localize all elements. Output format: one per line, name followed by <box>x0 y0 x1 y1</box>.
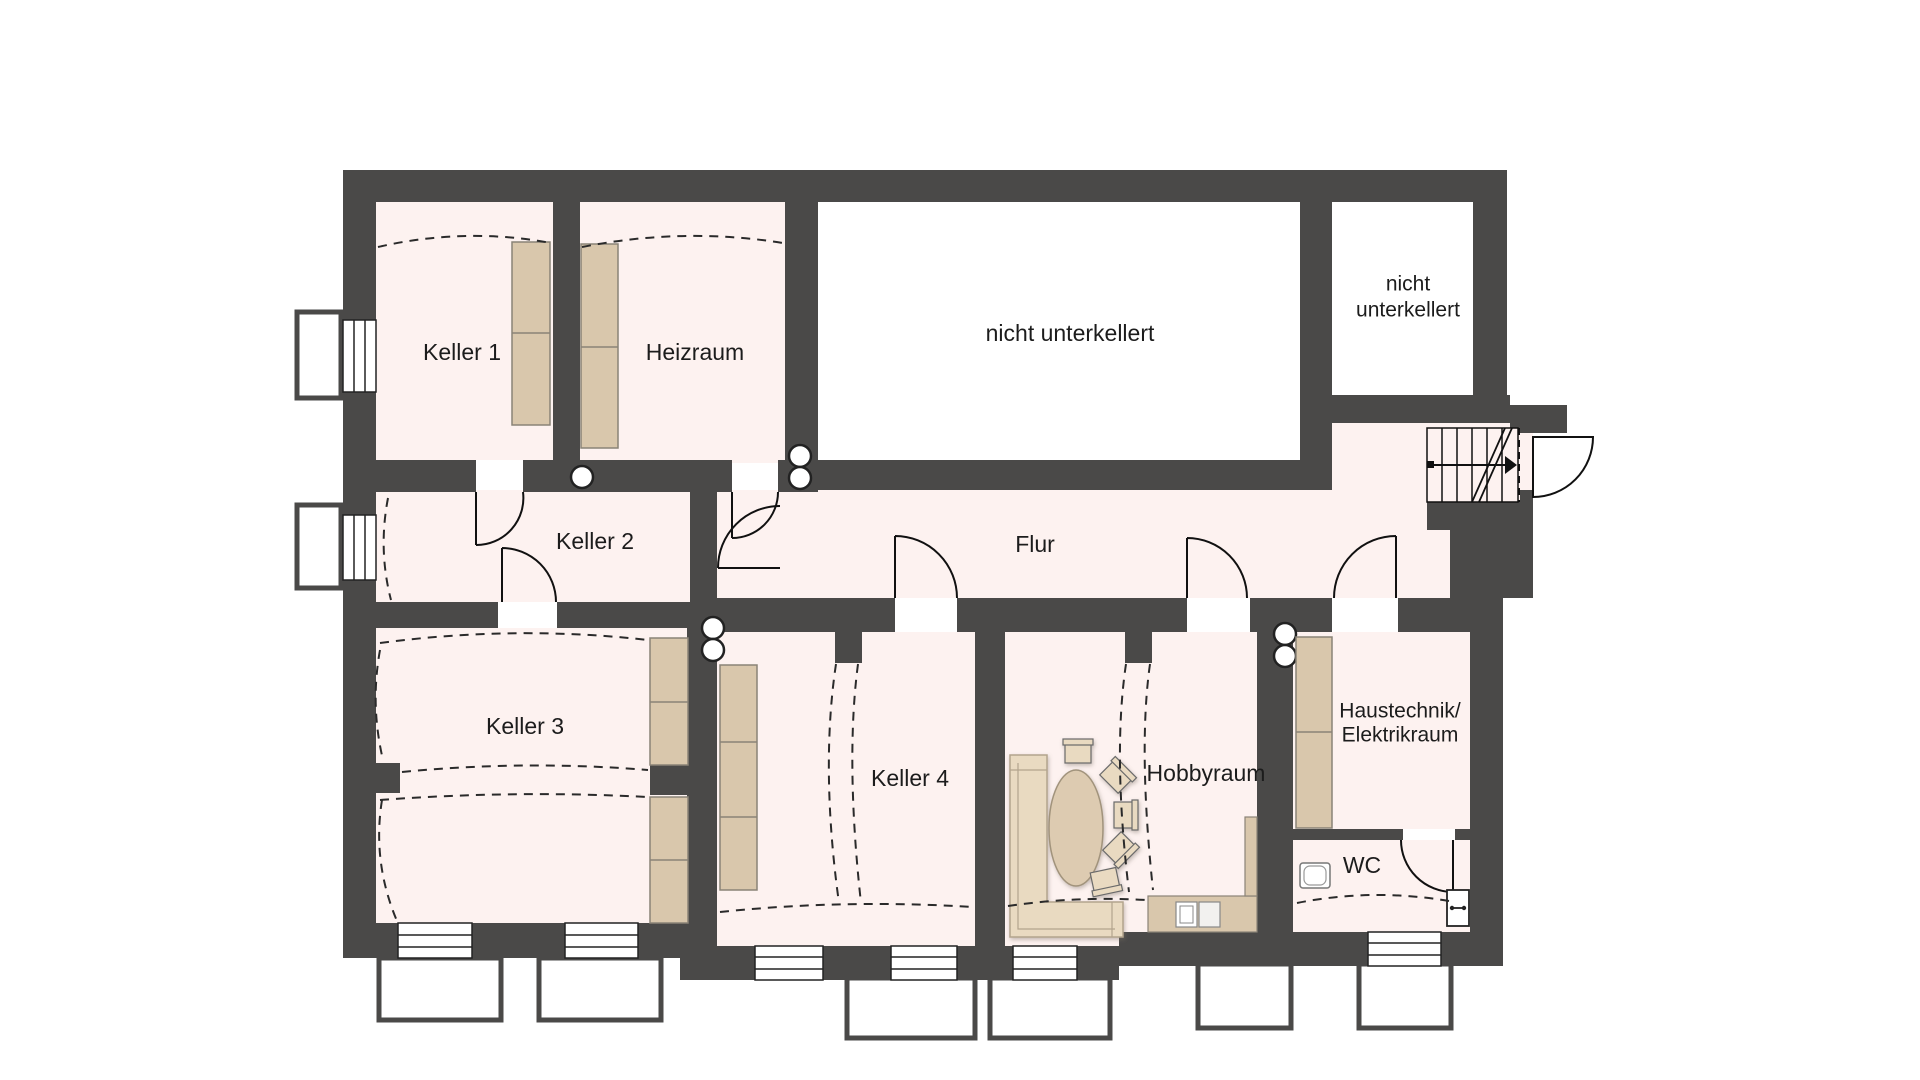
wall-wc-jamb <box>1455 829 1470 840</box>
wall-flur-bottom-a <box>717 598 895 632</box>
wall-keller1-keller2-b <box>523 460 732 492</box>
label-not-basemented-small-line1: nicht <box>1386 273 1431 296</box>
wall-keller4-hobbyraum <box>975 632 1005 946</box>
room-keller2 <box>376 490 690 602</box>
label-haustechnik-line1: Haustechnik/ <box>1339 700 1461 723</box>
window-keller1 <box>343 320 376 392</box>
light-well-bottom-1 <box>379 958 501 1020</box>
shelf-keller3-upper <box>650 638 688 765</box>
room-keller3 <box>376 628 687 923</box>
shelf-keller4 <box>720 665 757 890</box>
pipe-circle-icon <box>1274 645 1296 667</box>
chair <box>1063 739 1093 763</box>
pipe-circle-icon <box>1274 623 1296 645</box>
wall-keller2-right <box>690 490 717 632</box>
pipe-circle-icon <box>702 639 724 661</box>
pipe-circle-icon <box>702 617 724 639</box>
table <box>1049 770 1103 886</box>
drainboard <box>1199 902 1220 927</box>
wall-stair-corner-block <box>1450 530 1533 598</box>
wall-bottom-right <box>1119 932 1503 966</box>
wall-below-stairs <box>1427 502 1533 530</box>
wall-keller3-stub-left <box>376 763 400 793</box>
label-keller1: Keller 1 <box>423 339 501 365</box>
floorplan-page: Keller 1 Heizraum nicht unterkellert nic… <box>0 0 1920 1080</box>
label-not-basemented-large: nicht unterkellert <box>986 320 1155 346</box>
pipe-circle-icon <box>571 466 593 488</box>
wall-small-room-bottom <box>1300 395 1510 423</box>
wall-haustechnik-wc <box>1293 829 1403 840</box>
wall-keller2-keller3-b <box>557 602 690 628</box>
wall-small-room-right <box>1473 202 1507 395</box>
shelf-haustechnik <box>1296 637 1332 828</box>
room-flur <box>717 490 1450 598</box>
wall-right <box>1470 598 1503 966</box>
label-hobbyraum: Hobbyraum <box>1147 760 1266 786</box>
window-keller2 <box>343 515 376 580</box>
wc-sink <box>1447 890 1469 926</box>
label-keller4: Keller 4 <box>871 765 949 791</box>
entry-door <box>1533 437 1593 497</box>
light-well-left-2 <box>297 505 341 588</box>
label-wc: WC <box>1343 852 1381 878</box>
wall-notbasemented-right <box>1300 202 1332 490</box>
pipe-circle-icon <box>789 445 811 467</box>
shelf-keller1 <box>512 242 550 425</box>
wall-keller1-heizraum <box>553 202 580 460</box>
label-keller2: Keller 2 <box>556 528 634 554</box>
light-well-bottom-4 <box>990 978 1110 1038</box>
floorplan-drawing: Keller 1 Heizraum nicht unterkellert nic… <box>0 0 1920 1080</box>
wall-stub-hobbyraum <box>1125 632 1152 663</box>
wall-keller3-stub-right <box>650 765 717 795</box>
wall-stub-keller4 <box>835 632 862 663</box>
light-well-bottom-6 <box>1359 964 1451 1028</box>
label-not-basemented-small-line2: unterkellert <box>1356 299 1460 322</box>
wall-top <box>343 170 1507 202</box>
light-well-bottom-5 <box>1198 964 1291 1028</box>
light-well-bottom-2 <box>539 958 661 1020</box>
wall-flur-bottom-b <box>957 598 1187 632</box>
light-well-bottom-3 <box>847 978 975 1038</box>
window-wc <box>1368 932 1441 966</box>
shelf-heizraum <box>581 244 618 448</box>
wall-keller1-keller2-a <box>376 460 476 492</box>
label-flur: Flur <box>1015 531 1055 557</box>
shelf-keller3-lower <box>650 797 688 923</box>
window-hobbyraum <box>1013 946 1077 980</box>
pipe-circle-icon <box>789 467 811 489</box>
wall-keller2-keller3-a <box>376 602 498 628</box>
window-keller3-2 <box>565 923 638 958</box>
light-well-left-1 <box>297 312 341 398</box>
window-keller4-1 <box>755 946 823 980</box>
window-keller4-2 <box>891 946 957 980</box>
label-keller3: Keller 3 <box>486 713 564 739</box>
chair <box>1114 800 1138 830</box>
window-keller3-1 <box>398 923 472 958</box>
label-heizraum: Heizraum <box>646 339 744 365</box>
wall-flur-top <box>818 460 1300 490</box>
stairs <box>1427 428 1593 502</box>
label-haustechnik-line2: Elektrikraum <box>1342 724 1459 747</box>
wall-stair-jamb <box>1520 490 1533 502</box>
room-flur-stair-landing <box>1330 423 1427 490</box>
